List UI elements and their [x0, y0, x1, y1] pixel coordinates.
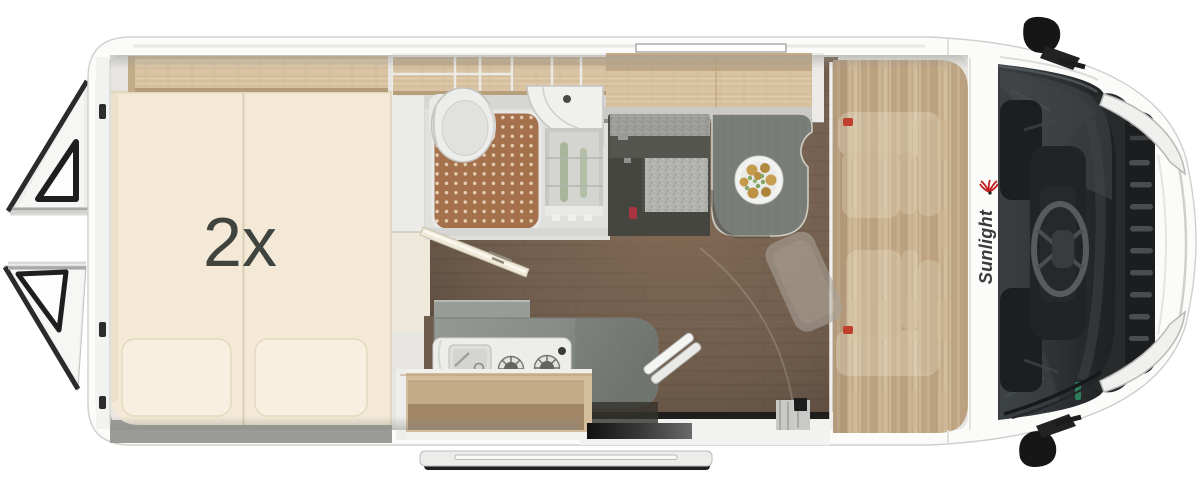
svg-text:2x: 2x	[203, 203, 277, 281]
svg-text:Sunlight: Sunlight	[976, 209, 996, 284]
